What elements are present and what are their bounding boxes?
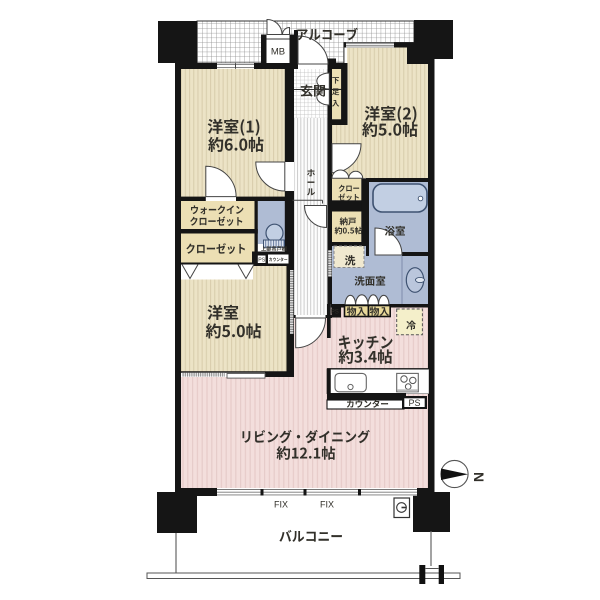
svg-text:MB: MB: [271, 47, 285, 58]
svg-text:PS: PS: [258, 258, 265, 264]
svg-text:FIX: FIX: [320, 500, 334, 510]
svg-text:PS: PS: [408, 398, 420, 408]
svg-text:FIX: FIX: [274, 500, 288, 510]
svg-text:N: N: [471, 472, 487, 482]
svg-text:PS: PS: [331, 309, 339, 315]
